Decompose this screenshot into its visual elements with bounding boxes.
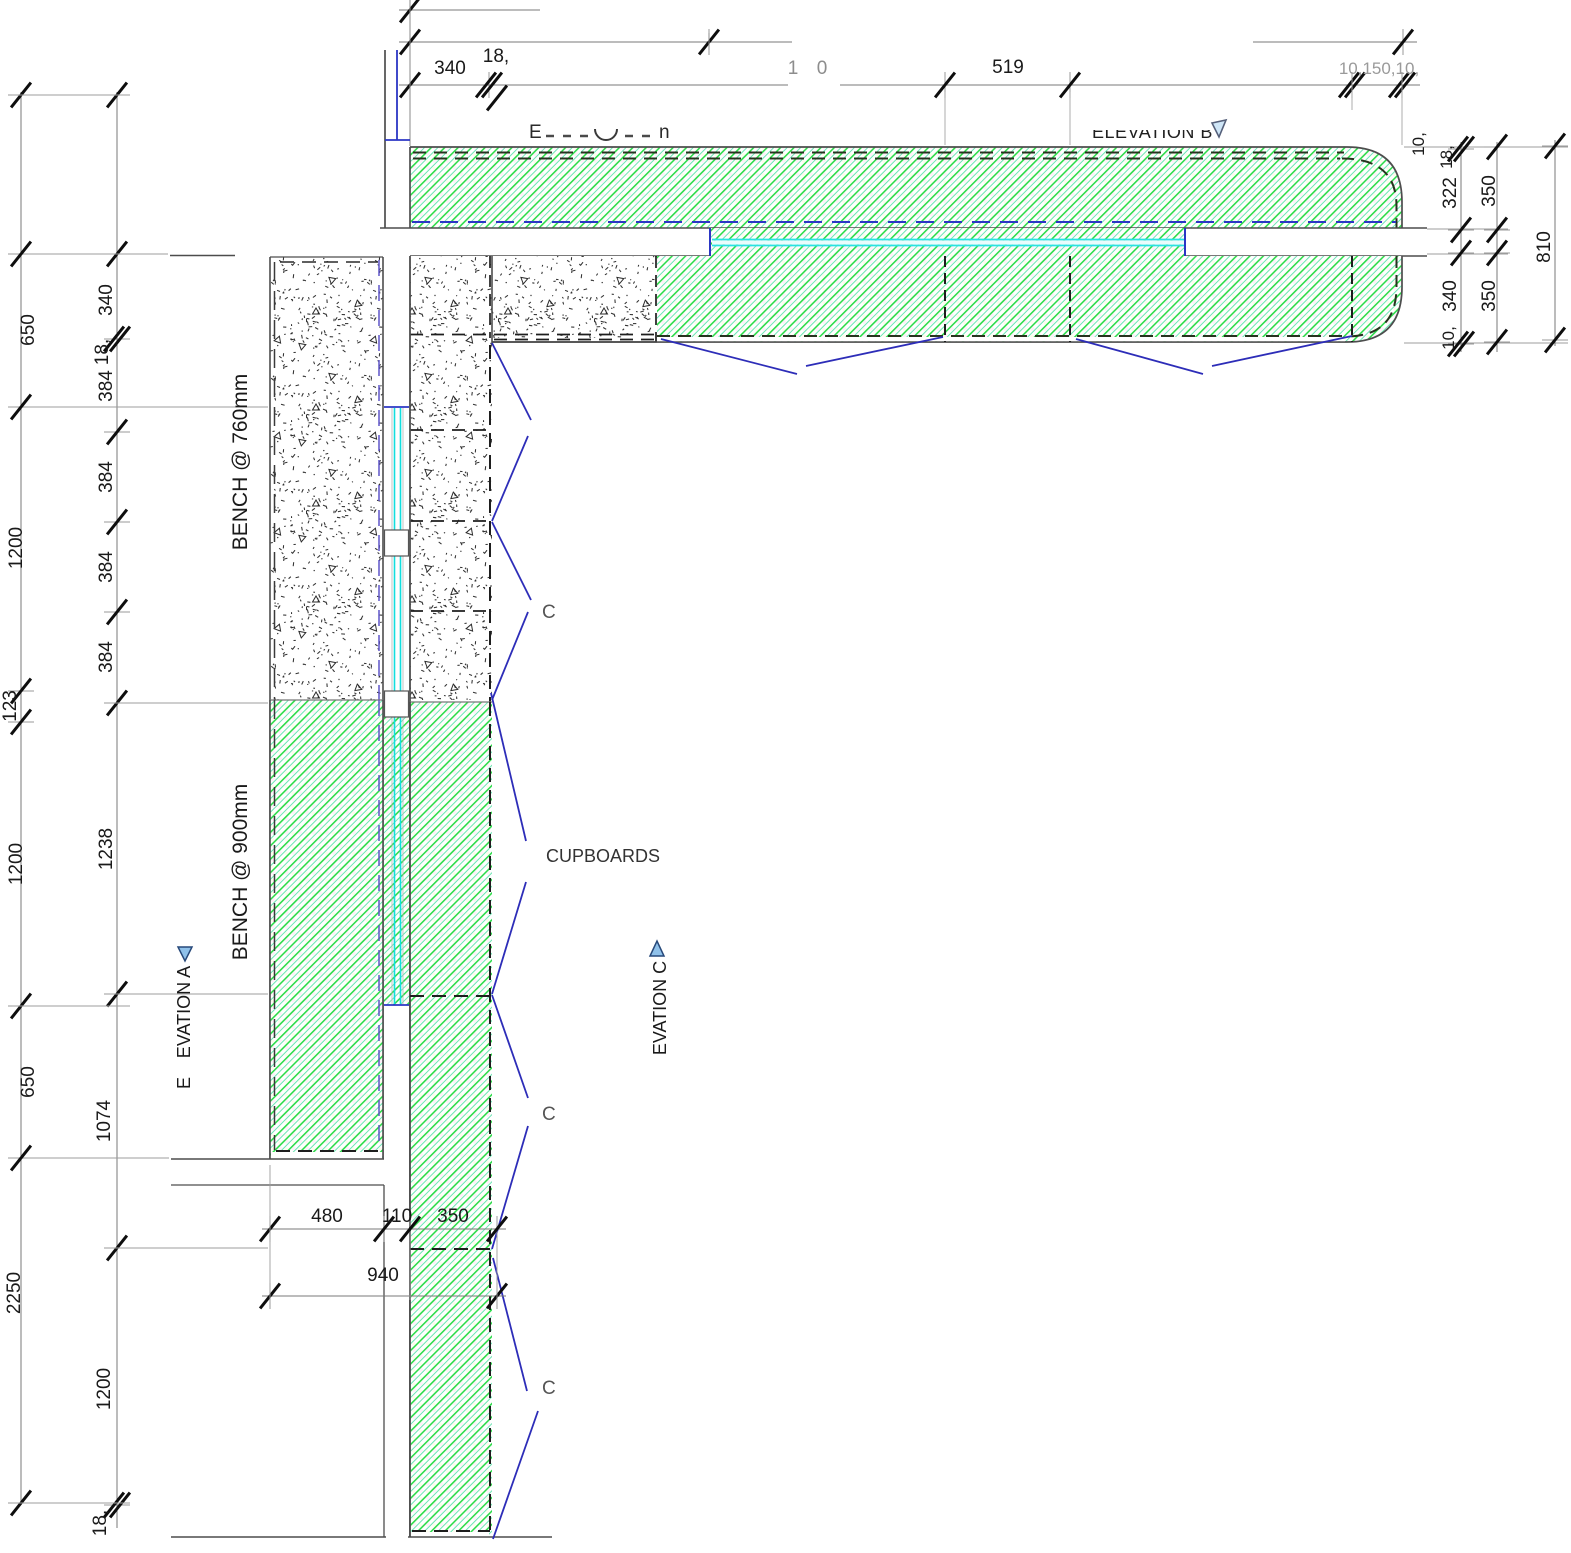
svg-text:519: 519 bbox=[992, 57, 1024, 78]
svg-text:1: 1 bbox=[788, 58, 799, 79]
svg-text:123: 123 bbox=[0, 690, 21, 722]
svg-text:340: 340 bbox=[1440, 280, 1461, 312]
svg-text:18,: 18, bbox=[1437, 145, 1456, 169]
svg-text:480: 480 bbox=[311, 1206, 343, 1227]
svg-text:C: C bbox=[542, 602, 556, 623]
svg-text:810: 810 bbox=[1534, 231, 1555, 263]
svg-text:340: 340 bbox=[96, 284, 117, 316]
svg-text:1074: 1074 bbox=[94, 1099, 115, 1142]
svg-text:18,: 18, bbox=[483, 46, 509, 67]
svg-text:BENCH @ 760mm: BENCH @ 760mm bbox=[229, 374, 252, 551]
svg-text:340: 340 bbox=[434, 58, 466, 79]
svg-text:C: C bbox=[542, 1378, 556, 1399]
svg-text:EVATION C: EVATION C bbox=[650, 961, 670, 1055]
svg-text:1200: 1200 bbox=[94, 1368, 115, 1410]
svg-text:EVATION A: EVATION A bbox=[174, 966, 194, 1058]
svg-text:110: 110 bbox=[382, 1206, 412, 1227]
svg-text:18,: 18, bbox=[92, 339, 113, 365]
svg-text:350: 350 bbox=[1479, 175, 1500, 207]
svg-text:0: 0 bbox=[817, 58, 828, 79]
svg-text:384: 384 bbox=[96, 641, 117, 673]
svg-text:E: E bbox=[174, 1077, 194, 1089]
svg-text:10,: 10, bbox=[1439, 326, 1458, 350]
svg-text:384: 384 bbox=[96, 551, 117, 583]
svg-text:384: 384 bbox=[96, 461, 117, 493]
svg-text:350: 350 bbox=[1479, 280, 1500, 312]
svg-text:384: 384 bbox=[96, 370, 117, 402]
svg-text:2250: 2250 bbox=[4, 1272, 25, 1314]
svg-text:10,: 10, bbox=[1409, 132, 1428, 156]
svg-text:n: n bbox=[659, 122, 670, 143]
svg-text:C: C bbox=[542, 1104, 556, 1125]
svg-text:350: 350 bbox=[437, 1206, 469, 1227]
svg-text:650: 650 bbox=[18, 1066, 39, 1098]
svg-text:BENCH @ 900mm: BENCH @ 900mm bbox=[229, 784, 252, 961]
svg-text:322: 322 bbox=[1440, 177, 1461, 209]
svg-text:10,150,10,: 10,150,10, bbox=[1339, 59, 1419, 78]
svg-text:1200: 1200 bbox=[6, 843, 27, 885]
svg-text:18,: 18, bbox=[90, 1510, 111, 1536]
svg-text:650: 650 bbox=[18, 314, 39, 346]
svg-text:CUPBOARDS: CUPBOARDS bbox=[546, 846, 660, 866]
svg-text:E: E bbox=[529, 122, 542, 143]
svg-text:1200: 1200 bbox=[6, 527, 27, 569]
svg-text:1238: 1238 bbox=[96, 828, 117, 870]
svg-text:940: 940 bbox=[367, 1265, 399, 1286]
